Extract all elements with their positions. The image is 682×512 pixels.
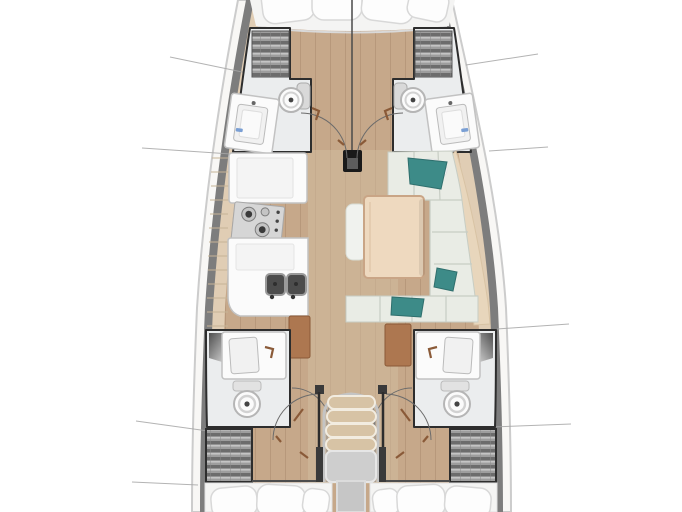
pillow xyxy=(301,487,330,512)
yacht-floor-plan xyxy=(0,0,682,512)
port-aft-head xyxy=(206,330,290,427)
port-forward-sink xyxy=(224,93,279,154)
faucet-icon xyxy=(270,295,274,299)
sink-basin-inner xyxy=(239,110,263,140)
floor-plan-canvas xyxy=(0,0,682,512)
galley-upper-counter-panel xyxy=(237,158,293,198)
toilet-drain xyxy=(289,98,294,103)
starboard-aft-cabin-bed xyxy=(370,483,497,512)
stair-post-lower xyxy=(379,447,386,482)
starboard-aft-sink-basin xyxy=(443,337,473,374)
port-aft-sink-basin xyxy=(229,337,259,374)
toilet-drain xyxy=(244,401,249,406)
port-forward-shelf-unit xyxy=(252,31,289,77)
port-aft-toilet xyxy=(233,381,261,417)
pillow xyxy=(396,484,446,512)
stair-post-lower xyxy=(316,447,323,482)
faucet-icon xyxy=(291,295,295,299)
salon-teal-pillow xyxy=(434,268,457,291)
pillow xyxy=(444,485,492,512)
toilet-tank xyxy=(441,381,469,391)
salon-table-shadow xyxy=(419,199,425,276)
starboard-aft-head xyxy=(414,330,496,427)
leader-line-stbd-2 xyxy=(489,147,548,151)
salon-teal-pillow xyxy=(391,297,424,317)
port-mid-cabinet xyxy=(289,316,310,358)
stair-tread xyxy=(328,396,375,409)
stair-landing xyxy=(326,451,376,482)
salon-table-top xyxy=(364,196,424,278)
salon-table xyxy=(364,196,425,278)
stair-tread xyxy=(326,424,376,437)
leader-line-port-4 xyxy=(132,482,198,485)
starboard-forward-sink xyxy=(425,93,480,154)
toilet-drain xyxy=(454,401,459,406)
galley-lower-counter-panel xyxy=(236,244,294,270)
starboard-forward-shelf-unit xyxy=(415,31,452,77)
v-berth-pillow xyxy=(312,0,362,20)
port-aft-shelf-unit xyxy=(206,429,252,482)
burner-icon-small xyxy=(261,208,270,217)
stair-tread xyxy=(326,438,376,451)
starboard-aft-toilet xyxy=(441,381,470,417)
stair-runner xyxy=(337,481,365,512)
pillow xyxy=(256,484,306,512)
sink-basin-inner xyxy=(442,110,466,140)
drain-icon xyxy=(273,282,277,286)
stair-tread xyxy=(327,410,376,423)
toilet-drain xyxy=(411,98,416,103)
drain-icon xyxy=(294,282,298,286)
salon-teal-pillow xyxy=(408,158,447,189)
mast-post xyxy=(343,150,362,172)
mast-post-top xyxy=(347,158,358,169)
starboard-aft-shelf-unit xyxy=(450,429,496,482)
pillow xyxy=(210,485,258,512)
starboard-mid-cabinet xyxy=(385,324,411,366)
leader-line-stbd-1 xyxy=(466,54,538,65)
leader-line-stbd-3 xyxy=(497,324,569,329)
port-aft-cabin-bed xyxy=(205,483,332,512)
toilet-tank xyxy=(233,381,261,391)
